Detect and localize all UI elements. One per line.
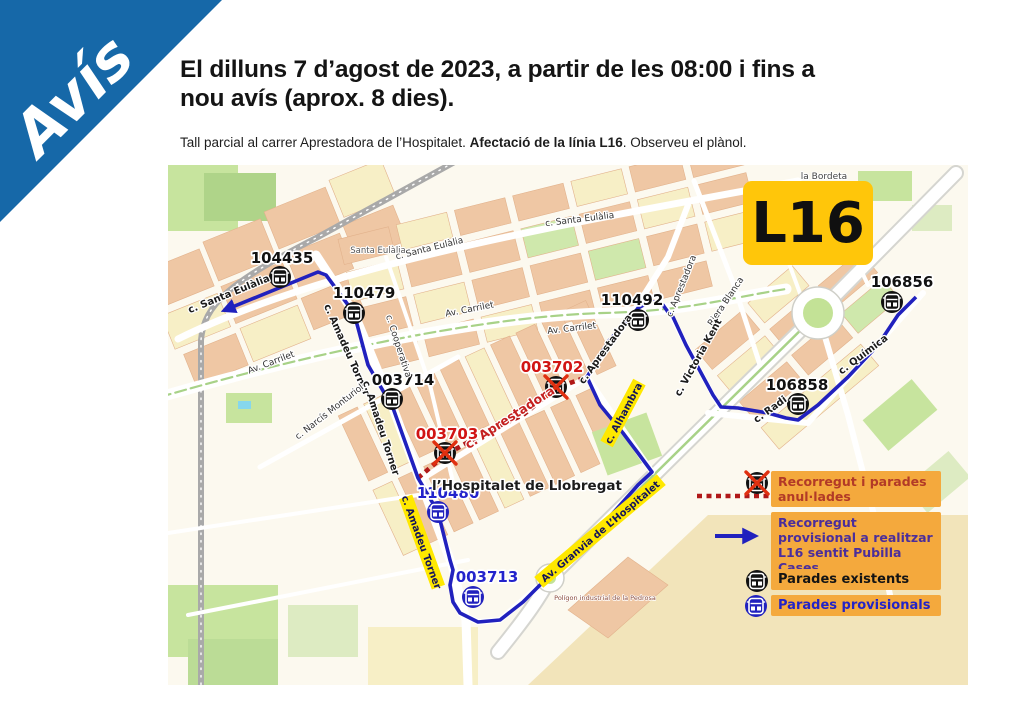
bus-stop-code: 106856 bbox=[871, 273, 934, 291]
subtitle-suffix: . Observeu el plànol. bbox=[623, 135, 747, 150]
legend-item-existing-stops: Parades existents bbox=[771, 569, 941, 590]
bus-stop-provisional-icon bbox=[462, 586, 484, 608]
notice-title-line2: nou avís (aprox. 8 dies). bbox=[180, 84, 980, 113]
bus-stop-icon bbox=[881, 291, 903, 313]
bus-stop-cancelled-icon bbox=[434, 442, 456, 464]
industrial-area-label: Polígon industrial de la Pedrosa bbox=[554, 594, 656, 602]
legend-provisional-stop-icon bbox=[745, 595, 767, 617]
line-badge-l16: L16 bbox=[743, 181, 873, 265]
bus-stop-code: 003713 bbox=[456, 568, 519, 586]
city-label: l’Hospitalet de Llobregat bbox=[432, 478, 622, 494]
subtitle-prefix: Tall parcial al carrer Aprestadora de l’… bbox=[180, 135, 470, 150]
notice-title-line1: El dilluns 7 d’agost de 2023, a partir d… bbox=[180, 55, 980, 84]
subtitle-affected-line: Afectació de la línia L16 bbox=[470, 135, 623, 150]
legend-item-cancelled: Recorregut i parades anul·lades bbox=[771, 471, 941, 507]
bus-stop-code: 104435 bbox=[251, 249, 314, 267]
notice-subtitle: Tall parcial al carrer Aprestadora de l’… bbox=[180, 135, 980, 150]
bus-stop-code: 003702 bbox=[521, 358, 584, 376]
bus-stop-code: 110479 bbox=[333, 284, 396, 302]
bus-stop-code: 106858 bbox=[766, 376, 829, 394]
notice-title: El dilluns 7 d’agost de 2023, a partir d… bbox=[180, 55, 980, 113]
bus-stop-code: 110492 bbox=[601, 291, 664, 309]
bus-stop-icon bbox=[381, 388, 403, 410]
legend-item-provisional-stops: Parades provisionals bbox=[771, 595, 941, 616]
service-notice-poster: Avís El dilluns 7 d’agost de 2023, a par… bbox=[0, 0, 1024, 724]
bus-stop-icon bbox=[269, 266, 291, 288]
legend-existing-stop-icon bbox=[746, 570, 768, 592]
bus-stop-icon bbox=[787, 393, 809, 415]
legend-cancelled-stop-icon bbox=[746, 472, 768, 494]
bus-stop-provisional-icon bbox=[427, 501, 449, 523]
bus-stop-icon bbox=[343, 302, 365, 324]
route-map: 104435 110479 003714 003702 003703 11048… bbox=[168, 165, 968, 685]
